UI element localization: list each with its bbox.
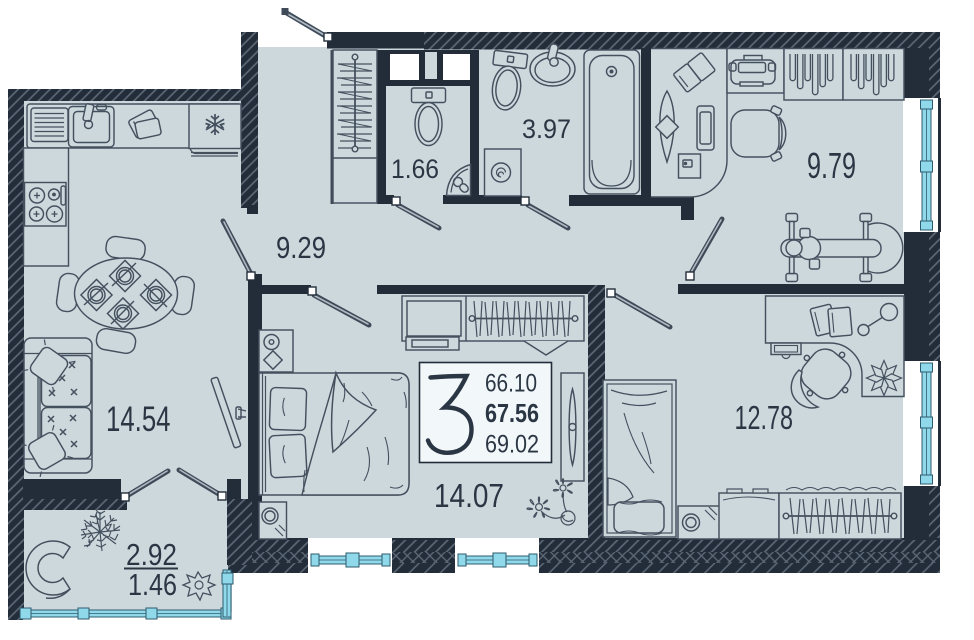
svg-text:9.29: 9.29 bbox=[276, 230, 326, 265]
svg-text:3.97: 3.97 bbox=[522, 114, 571, 144]
svg-text:14.07: 14.07 bbox=[434, 477, 504, 514]
svg-text:1.66: 1.66 bbox=[391, 154, 439, 184]
svg-text:67.56: 67.56 bbox=[485, 400, 539, 428]
svg-text:14.54: 14.54 bbox=[106, 400, 171, 439]
svg-text:66.10: 66.10 bbox=[485, 370, 537, 398]
svg-text:69.02: 69.02 bbox=[485, 431, 539, 459]
svg-text:1.46: 1.46 bbox=[128, 567, 177, 602]
svg-text:9.79: 9.79 bbox=[807, 145, 856, 186]
svg-text:12.78: 12.78 bbox=[735, 399, 794, 436]
